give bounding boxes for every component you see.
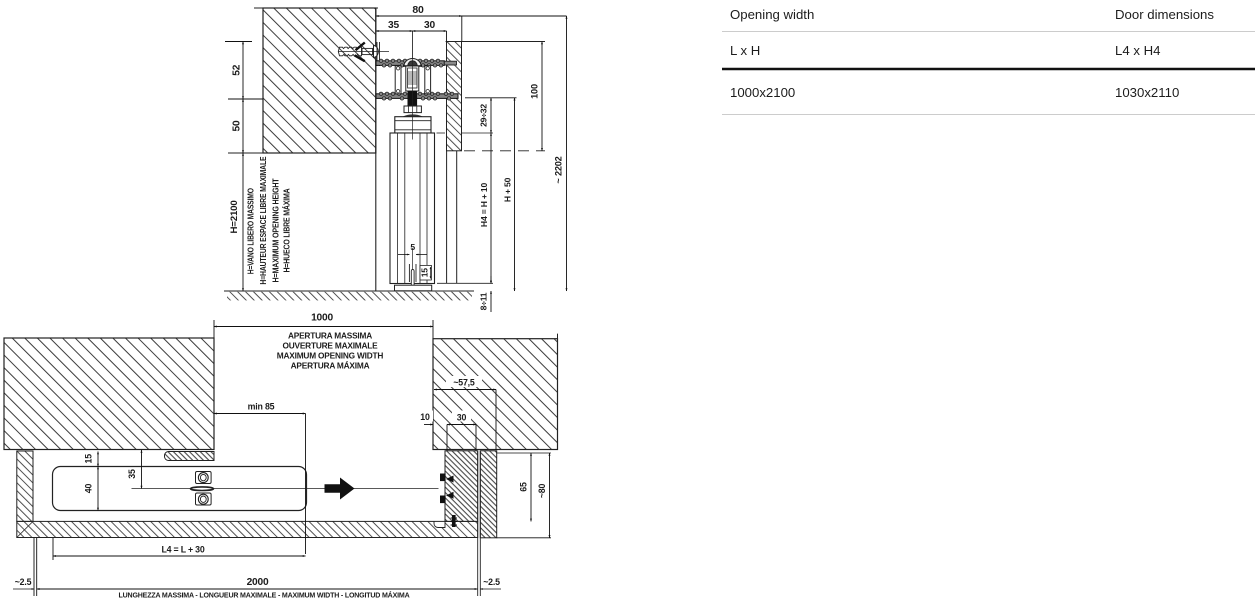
svg-text:H=2100: H=2100 bbox=[229, 200, 239, 233]
svg-text:30: 30 bbox=[424, 20, 435, 31]
svg-text:H=MAXIMUM OPENING HEIGHT: H=MAXIMUM OPENING HEIGHT bbox=[271, 178, 281, 282]
svg-text:OUVERTURE MAXIMALE: OUVERTURE MAXIMALE bbox=[282, 341, 378, 351]
svg-text:H + 50: H + 50 bbox=[503, 177, 513, 202]
svg-text:2000: 2000 bbox=[247, 577, 269, 588]
svg-text:~2.5: ~2.5 bbox=[483, 577, 500, 587]
svg-text:50: 50 bbox=[232, 120, 243, 131]
svg-text:H=VANO LIBERO MASSIMO: H=VANO LIBERO MASSIMO bbox=[246, 188, 256, 275]
svg-text:Door dimensions: Door dimensions bbox=[1115, 7, 1214, 22]
svg-text:~ 2202: ~ 2202 bbox=[554, 156, 564, 183]
svg-text:15: 15 bbox=[419, 268, 429, 278]
svg-text:L4 x H4: L4 x H4 bbox=[1115, 43, 1160, 58]
svg-text:H=HUECO LIBRE MÁXIMA: H=HUECO LIBRE MÁXIMA bbox=[282, 188, 292, 272]
svg-text:30: 30 bbox=[457, 413, 467, 423]
svg-text:MAXIMUM OPENING WIDTH: MAXIMUM OPENING WIDTH bbox=[277, 351, 384, 361]
svg-text:L x H: L x H bbox=[730, 43, 760, 58]
svg-text:Opening width: Opening width bbox=[730, 7, 814, 22]
svg-text:L4 = L + 30: L4 = L + 30 bbox=[161, 545, 204, 555]
svg-text:15: 15 bbox=[84, 454, 94, 464]
svg-text:H=HAUTEUR ESPACE LIBRE MAXIMAL: H=HAUTEUR ESPACE LIBRE MAXIMALE bbox=[258, 156, 268, 285]
svg-text:~2.5: ~2.5 bbox=[15, 577, 32, 587]
svg-text:H4 = H + 10: H4 = H + 10 bbox=[479, 183, 489, 228]
svg-text:65: 65 bbox=[519, 482, 529, 492]
svg-text:~80: ~80 bbox=[537, 484, 547, 499]
svg-text:100: 100 bbox=[530, 84, 540, 99]
svg-text:29÷32: 29÷32 bbox=[479, 104, 489, 127]
svg-text:1000: 1000 bbox=[311, 313, 333, 324]
svg-text:52: 52 bbox=[232, 64, 243, 75]
svg-text:~57,5: ~57,5 bbox=[453, 378, 475, 388]
svg-text:8÷11: 8÷11 bbox=[479, 292, 489, 310]
svg-text:35: 35 bbox=[127, 469, 137, 479]
svg-text:10: 10 bbox=[420, 412, 430, 422]
svg-text:1030x2110: 1030x2110 bbox=[1115, 85, 1179, 100]
svg-text:APERTURA MASSIMA: APERTURA MASSIMA bbox=[288, 331, 372, 341]
svg-text:40: 40 bbox=[84, 484, 94, 494]
svg-text:80: 80 bbox=[412, 4, 424, 16]
svg-text:LUNGHEZZA MASSIMA - LONGUEUR: LUNGHEZZA MASSIMA - LONGUEUR MAXIMALE - … bbox=[119, 591, 411, 599]
svg-text:min 85: min 85 bbox=[248, 402, 275, 412]
svg-text:35: 35 bbox=[388, 20, 399, 31]
svg-text:5: 5 bbox=[410, 242, 415, 252]
svg-text:1000x2100: 1000x2100 bbox=[730, 85, 795, 100]
svg-text:APERTURA MÁXIMA: APERTURA MÁXIMA bbox=[291, 361, 370, 371]
